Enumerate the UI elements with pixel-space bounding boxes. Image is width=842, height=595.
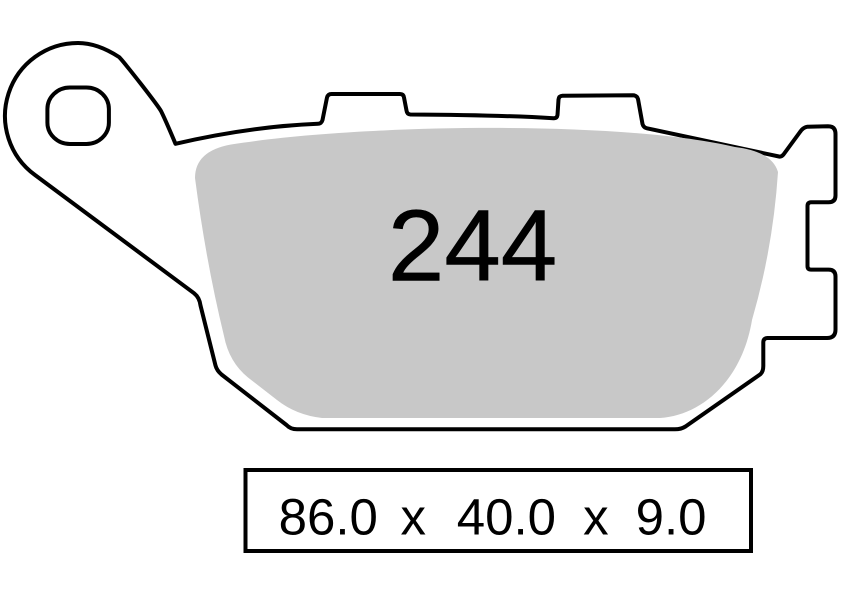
svg-text:244: 244 bbox=[388, 188, 557, 302]
svg-text:86.0: 86.0 bbox=[279, 489, 378, 546]
svg-text:x: x bbox=[401, 489, 427, 546]
svg-text:9.0: 9.0 bbox=[636, 489, 707, 546]
svg-text:40.0: 40.0 bbox=[457, 489, 556, 546]
svg-text:x: x bbox=[583, 489, 609, 546]
